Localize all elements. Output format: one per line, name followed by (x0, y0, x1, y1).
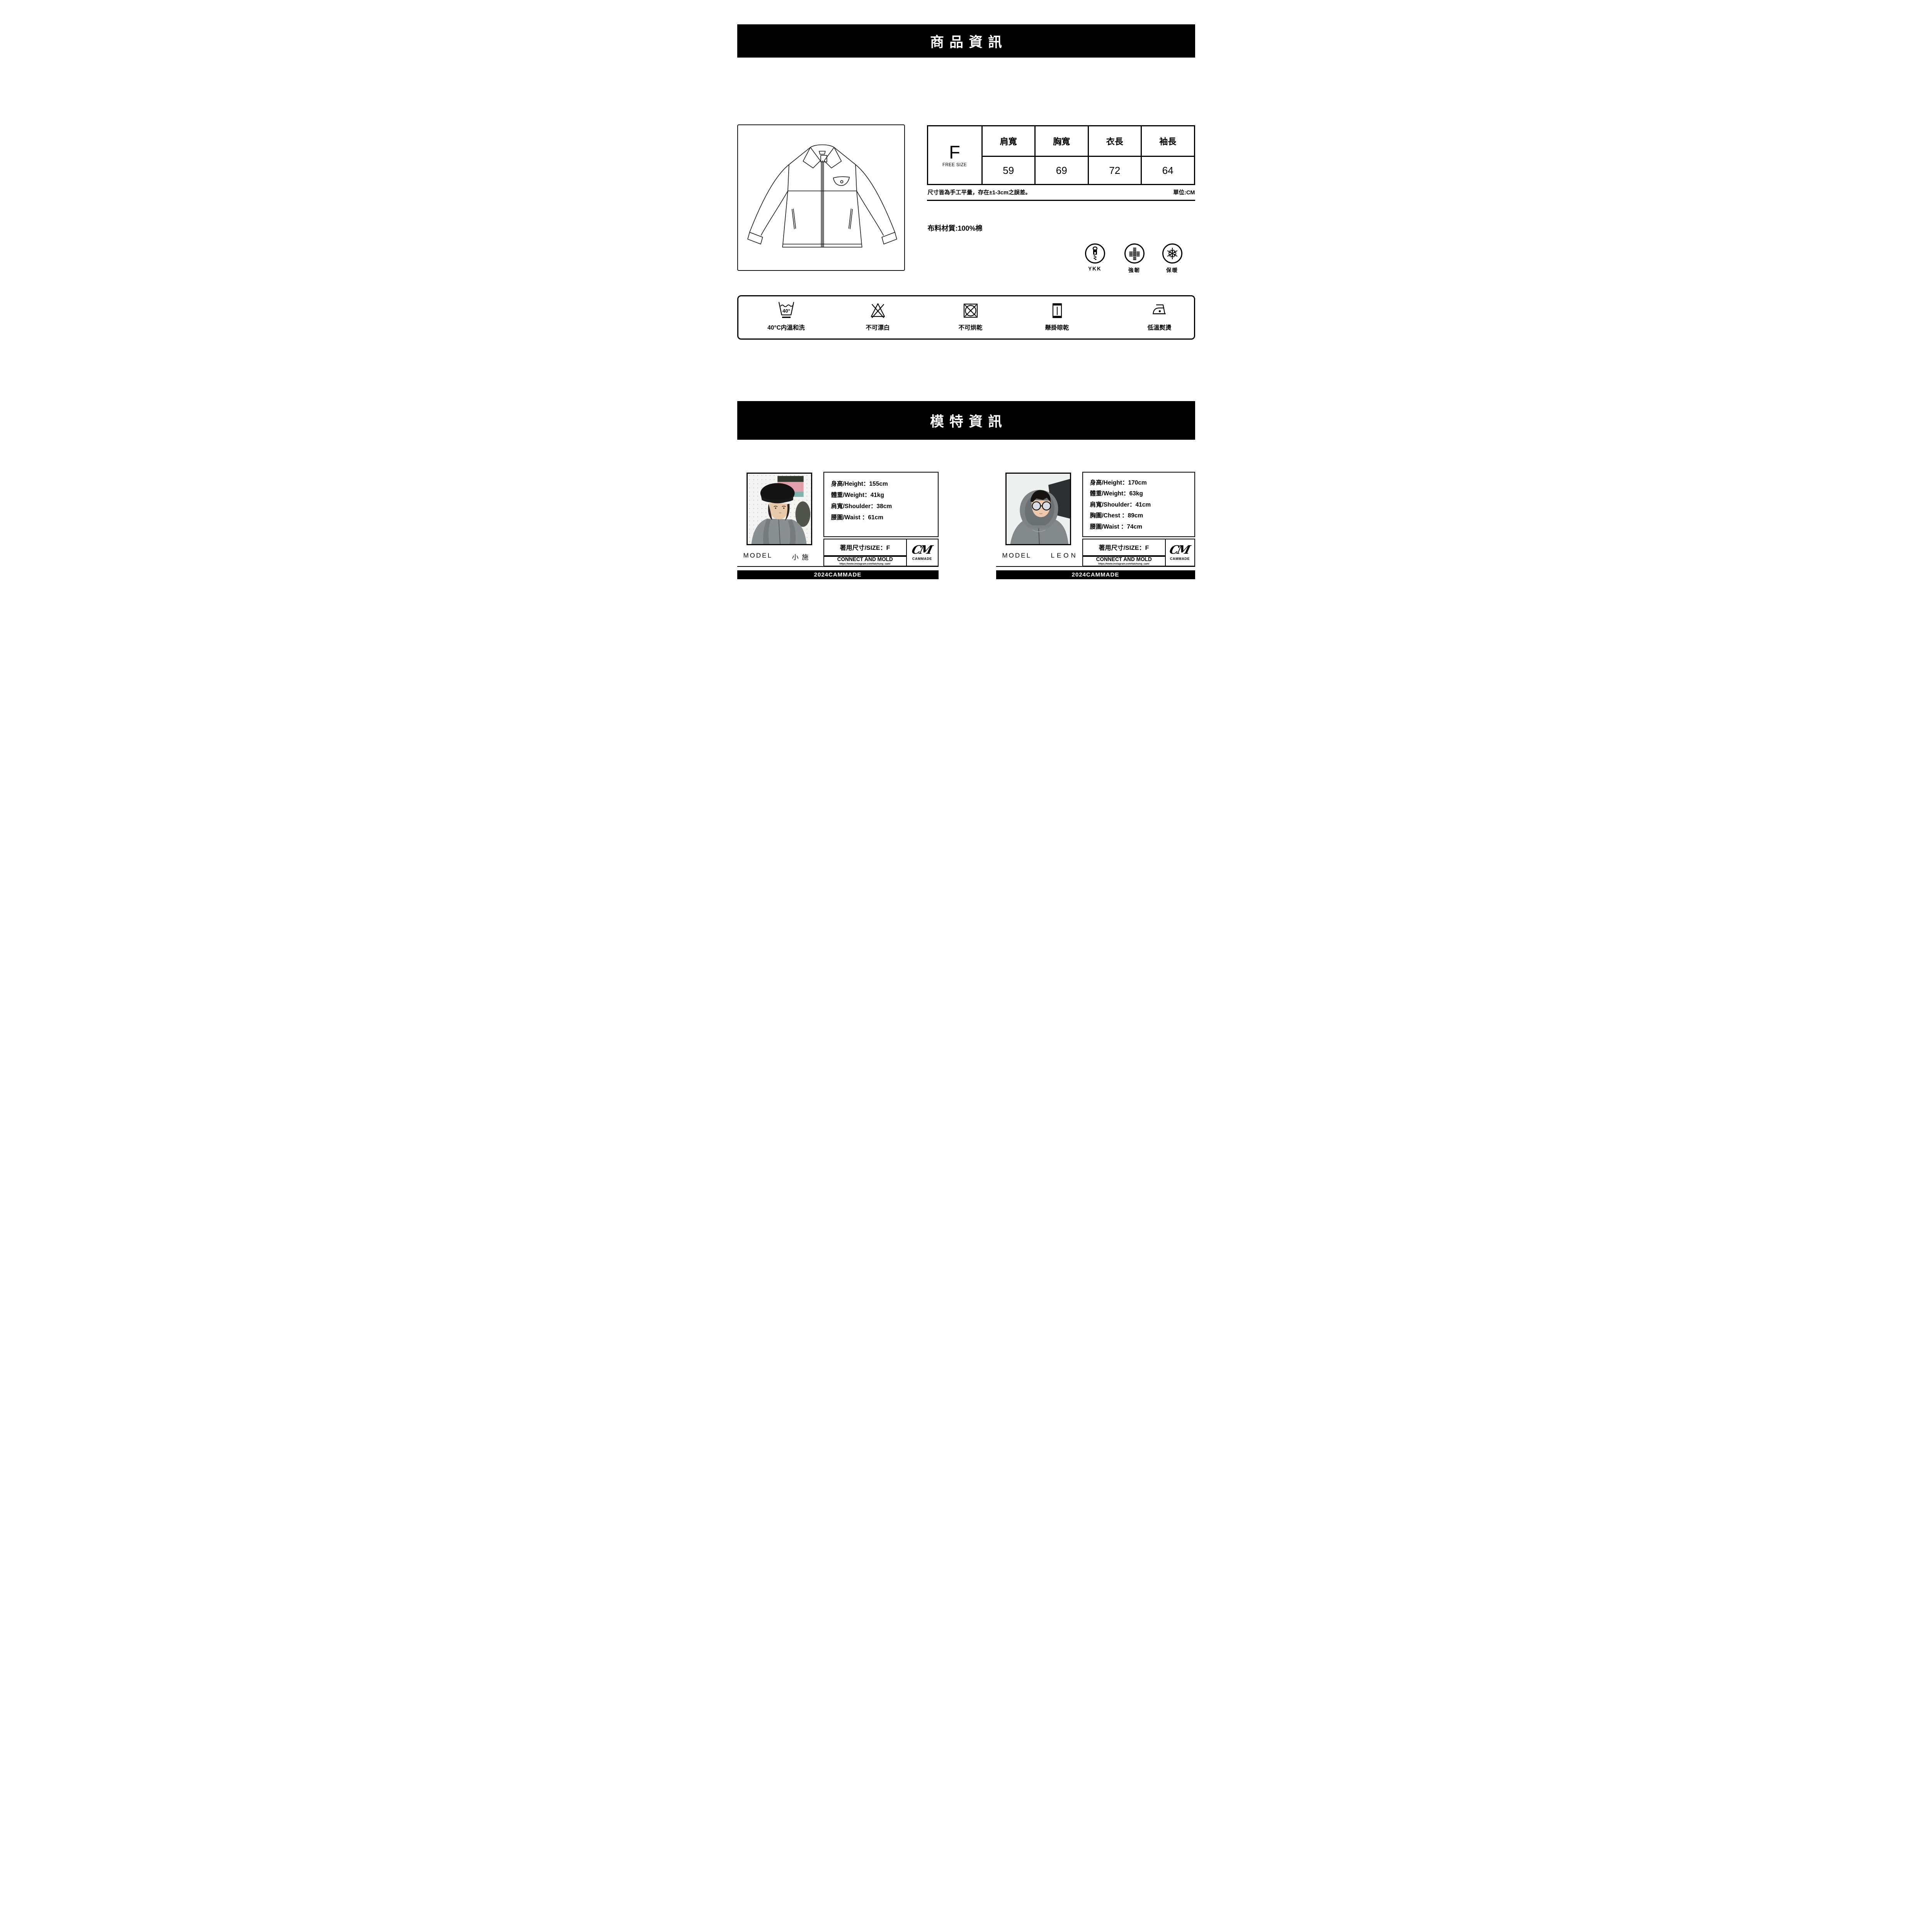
card-divider-line (996, 566, 1195, 567)
badge-ring (1124, 243, 1145, 264)
badge-warm: 保暖 (1157, 243, 1188, 274)
model-name-row: MODEL 小 施 (743, 552, 772, 560)
badge-label: 保暖 (1157, 266, 1188, 274)
model-size-brand-box: 著用尺寸/SIZE：F CONNECT AND MOLD https://www… (823, 539, 939, 566)
badge-ring (1085, 243, 1105, 264)
size-brand-column: 著用尺寸/SIZE：F CONNECT AND MOLD https://www… (824, 539, 907, 566)
size-val-sleeve: 64 (1141, 156, 1194, 184)
cammade-logo-caption: CAMMADE (1170, 557, 1190, 561)
jacket-sketch-box (737, 124, 905, 271)
model-stats-list: 身高/Height：170cm 體重/Weight：63kg 肩寬/Should… (1083, 473, 1194, 532)
size-val-shoulder: 59 (981, 156, 1035, 184)
badge-strong: 強韌 (1119, 243, 1150, 274)
wash-40-icon: 40° (778, 302, 795, 320)
worn-size-label: 著用尺寸/SIZE：F (824, 539, 906, 557)
badge-label: YKK (1080, 266, 1111, 272)
care-item-hang-dry: 懸掛晾乾 (1026, 302, 1088, 332)
size-val-chest: 69 (1034, 156, 1088, 184)
model-info-banner: 模特資訊 (737, 401, 1195, 440)
model-name-row: MODEL LEON (1002, 552, 1031, 560)
size-col-length: 衣長 (1088, 126, 1141, 156)
product-info-banner: 商品資訊 (737, 24, 1195, 58)
care-label: 低溫熨燙 (1129, 323, 1190, 332)
divider-line (927, 200, 1195, 201)
badge-ykk: YKK (1080, 243, 1111, 272)
badge-label: 強韌 (1119, 266, 1150, 274)
svg-text:40°: 40° (782, 308, 790, 314)
card-divider-line (737, 566, 939, 567)
size-value: F (949, 143, 960, 161)
model-label: MODEL (743, 552, 772, 559)
zipper-icon (1089, 247, 1101, 260)
no-bleach-icon (869, 302, 886, 320)
model-card-right: 身高/Height：170cm 體重/Weight：63kg 肩寬/Should… (996, 468, 1195, 580)
stat-shoulder: 肩寬/Shoulder：38cm (831, 501, 938, 512)
size-col-sleeve: 袖長 (1141, 126, 1194, 156)
snowflake-icon (1166, 247, 1179, 260)
care-label: 不可烘乾 (940, 323, 1002, 332)
care-item-wash: 40° 40°C内溫和洗 (755, 302, 817, 332)
care-label: 懸掛晾乾 (1026, 323, 1088, 332)
size-caption: FREE SIZE (942, 163, 967, 168)
stat-height: 身高/Height：170cm (1090, 478, 1194, 488)
cammade-logo-icon: CM (1168, 544, 1192, 556)
brand-name: CONNECT AND MOLD (1096, 557, 1151, 563)
brand-logo-cell: CM CAMMADE (1166, 539, 1194, 566)
care-item-iron-low: 低溫熨燙 (1129, 302, 1190, 332)
badge-ring (1162, 243, 1182, 264)
no-tumble-dry-icon (962, 302, 979, 320)
brand-instagram-url: https://www.instagram.com/taichung_cam/ (840, 563, 891, 566)
hang-dry-icon (1049, 302, 1066, 320)
weave-icon (1129, 247, 1140, 260)
stat-weight: 體重/Weight：63kg (1090, 488, 1194, 499)
fabric-label: 布料材質:100%棉 (928, 223, 983, 233)
care-instructions-box: 40° 40°C内溫和洗 不可漂白 不可烘乾 (737, 295, 1195, 340)
model-photo-leon (1005, 473, 1071, 545)
model-size-brand-box: 著用尺寸/SIZE：F CONNECT AND MOLD https://www… (1082, 539, 1195, 566)
model-stats-box: 身高/Height：170cm 體重/Weight：63kg 肩寬/Should… (1082, 472, 1195, 537)
brand-block: CONNECT AND MOLD https://www.instagram.c… (1083, 557, 1165, 566)
measure-note: 尺寸皆為手工平量，存在±1-3cm之誤差。 (928, 188, 1031, 196)
size-col-shoulder: 肩寬 (981, 126, 1035, 156)
care-item-no-tumble-dry: 不可烘乾 (940, 302, 1002, 332)
brand-block: CONNECT AND MOLD https://www.instagram.c… (824, 557, 906, 566)
product-info-page: 商品資訊 (734, 0, 1198, 605)
model-photo-illustration (1007, 474, 1070, 544)
stat-chest: 胸圍/Chest ：89cm (1090, 510, 1194, 521)
iron-low-icon (1151, 302, 1168, 320)
model-name: LEON (1051, 552, 1078, 560)
size-brand-column: 著用尺寸/SIZE：F CONNECT AND MOLD https://www… (1083, 539, 1166, 566)
brand-logo-cell: CM CAMMADE (907, 539, 938, 566)
unit-label: 單位:CM (1173, 188, 1195, 196)
size-val-length: 72 (1088, 156, 1141, 184)
stat-waist: 腰圍/Waist ：61cm (831, 512, 938, 523)
worn-size-label: 著用尺寸/SIZE：F (1083, 539, 1165, 557)
model-label: MODEL (1002, 552, 1031, 559)
model-stats-list: 身高/Height：155cm 體重/Weight：41kg 肩寬/Should… (824, 473, 938, 523)
brand-name: CONNECT AND MOLD (837, 557, 893, 563)
size-col-chest: 胸寬 (1034, 126, 1088, 156)
model-card-left: 身高/Height：155cm 體重/Weight：41kg 肩寬/Should… (737, 468, 939, 580)
care-label: 不可漂白 (847, 323, 909, 332)
model-photo-illustration (748, 474, 811, 544)
model-photo-xiaoshi (747, 473, 812, 545)
jacket-line-drawing-icon (738, 125, 904, 270)
size-table: F FREE SIZE 肩寬 胸寬 衣長 袖長 59 69 72 64 (927, 125, 1195, 185)
size-table-size-cell: F FREE SIZE (928, 126, 981, 184)
stat-shoulder: 肩寬/Shoulder：41cm (1090, 500, 1194, 510)
stat-waist: 腰圍/Waist ：74cm (1090, 522, 1194, 532)
cammade-logo-caption: CAMMADE (912, 557, 932, 561)
card-footer-bar: 2024CAMMADE (996, 570, 1195, 579)
care-label: 40°C内溫和洗 (755, 323, 817, 332)
model-stats-box: 身高/Height：155cm 體重/Weight：41kg 肩寬/Should… (823, 472, 939, 537)
model-info-title: 模特資訊 (930, 410, 1007, 430)
cammade-logo-icon: CM (910, 544, 934, 556)
care-item-no-bleach: 不可漂白 (847, 302, 909, 332)
model-name: 小 施 (792, 552, 810, 561)
brand-instagram-url: https://www.instagram.com/taichung_cam/ (1099, 563, 1150, 566)
stat-height: 身高/Height：155cm (831, 478, 938, 490)
stat-weight: 體重/Weight：41kg (831, 490, 938, 501)
product-info-title: 商品資訊 (930, 31, 1007, 51)
card-footer-bar: 2024CAMMADE (737, 570, 939, 579)
